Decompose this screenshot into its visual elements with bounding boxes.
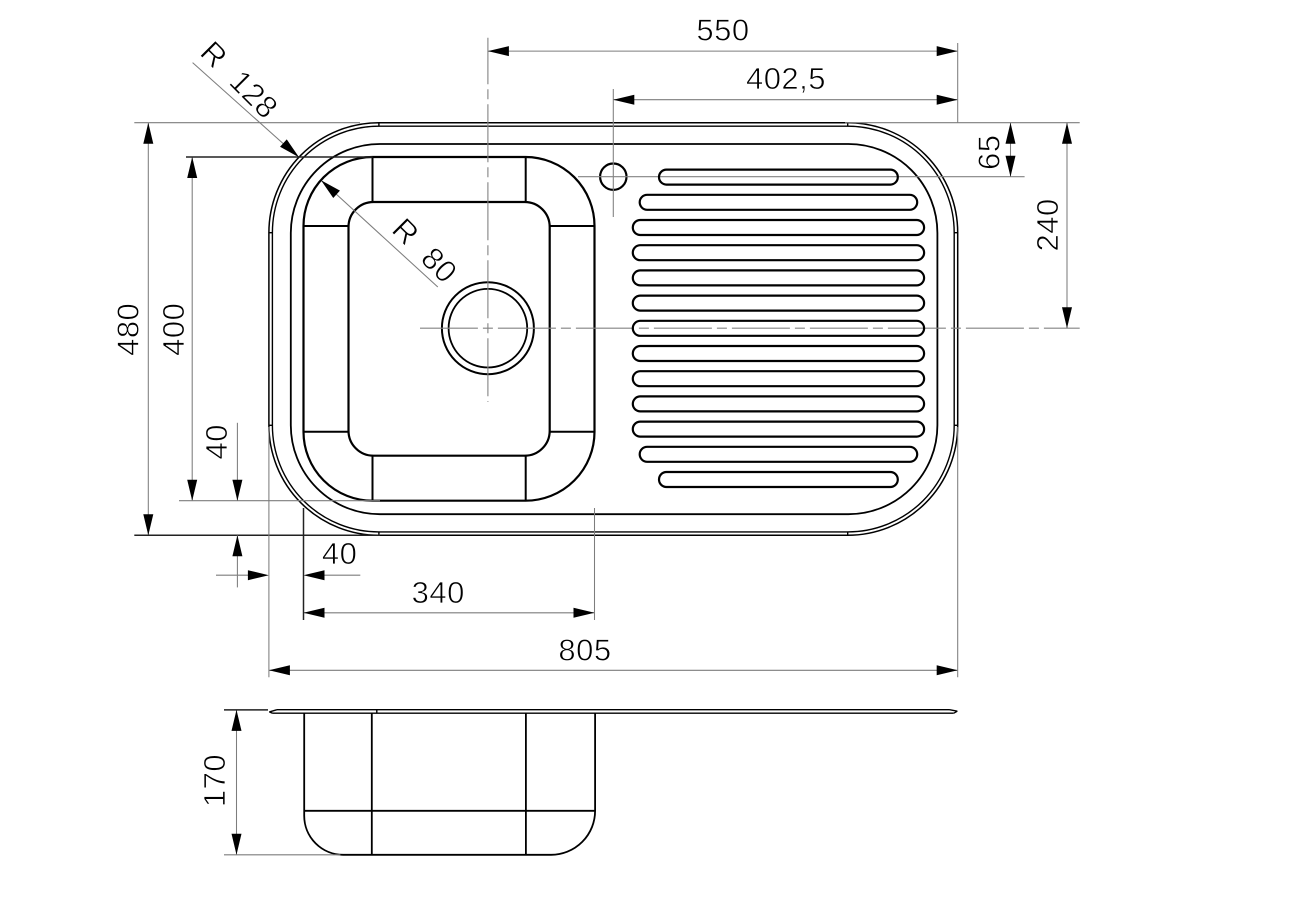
svg-text:805: 805 bbox=[558, 633, 611, 668]
svg-text:400: 400 bbox=[156, 303, 191, 356]
svg-text:480: 480 bbox=[111, 303, 146, 356]
svg-text:240: 240 bbox=[1030, 198, 1065, 251]
svg-text:550: 550 bbox=[696, 13, 749, 48]
svg-text:40: 40 bbox=[199, 424, 234, 459]
svg-text:65: 65 bbox=[972, 134, 1007, 169]
svg-text:170: 170 bbox=[197, 754, 232, 807]
svg-text:340: 340 bbox=[412, 575, 465, 610]
svg-text:40: 40 bbox=[322, 536, 357, 571]
svg-text:402,5: 402,5 bbox=[746, 61, 826, 96]
